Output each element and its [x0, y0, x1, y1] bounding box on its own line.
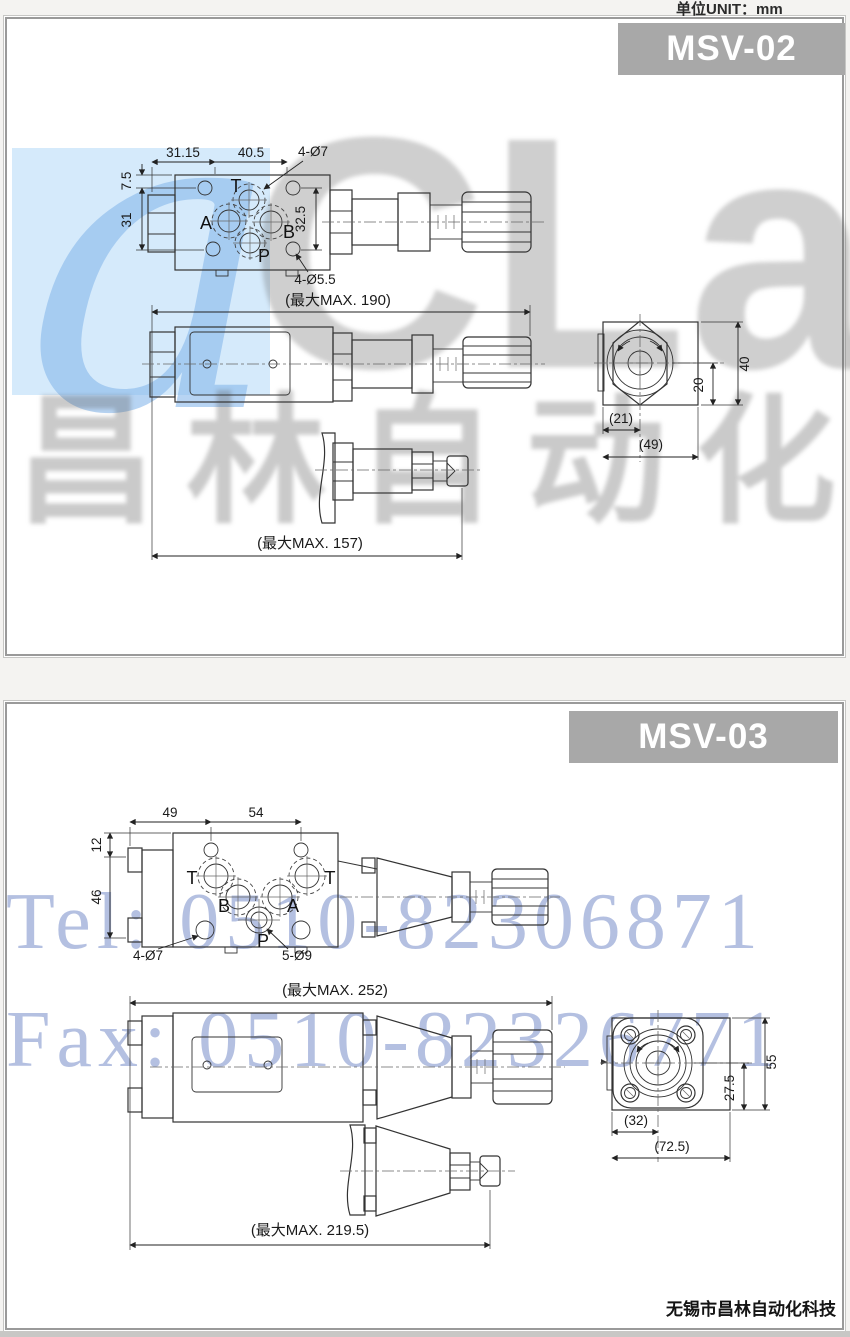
page-bottom-bar	[0, 1331, 850, 1337]
catalog-page: 单位UNIT：mm a CLair 昌林自动化 Tel: 0510-823068…	[0, 0, 850, 1337]
company-footer: 无锡市昌林自动化科技	[540, 1295, 836, 1320]
panel-msv03	[3, 700, 846, 1332]
panel-msv02	[3, 15, 846, 658]
model-header-msv02: MSV-02	[618, 23, 845, 75]
unit-label: 单位UNIT：mm	[676, 0, 846, 19]
model-header-msv03: MSV-03	[569, 711, 838, 763]
